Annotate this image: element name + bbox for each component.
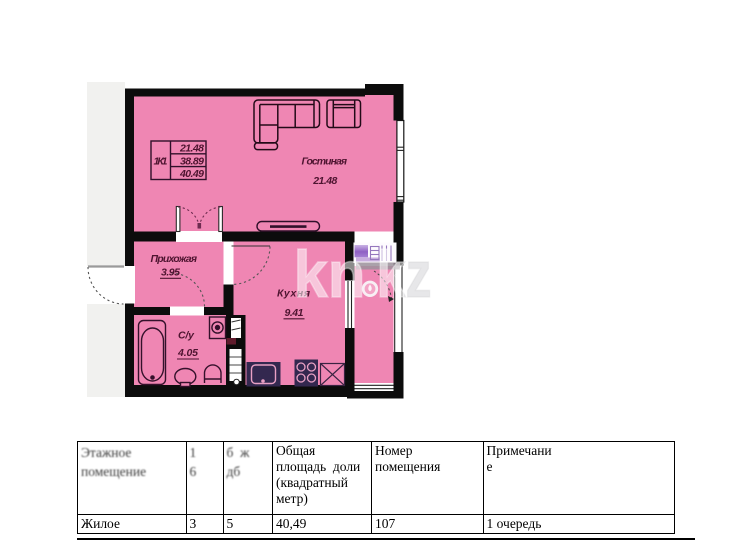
- svg-text:kn: kn: [294, 237, 366, 311]
